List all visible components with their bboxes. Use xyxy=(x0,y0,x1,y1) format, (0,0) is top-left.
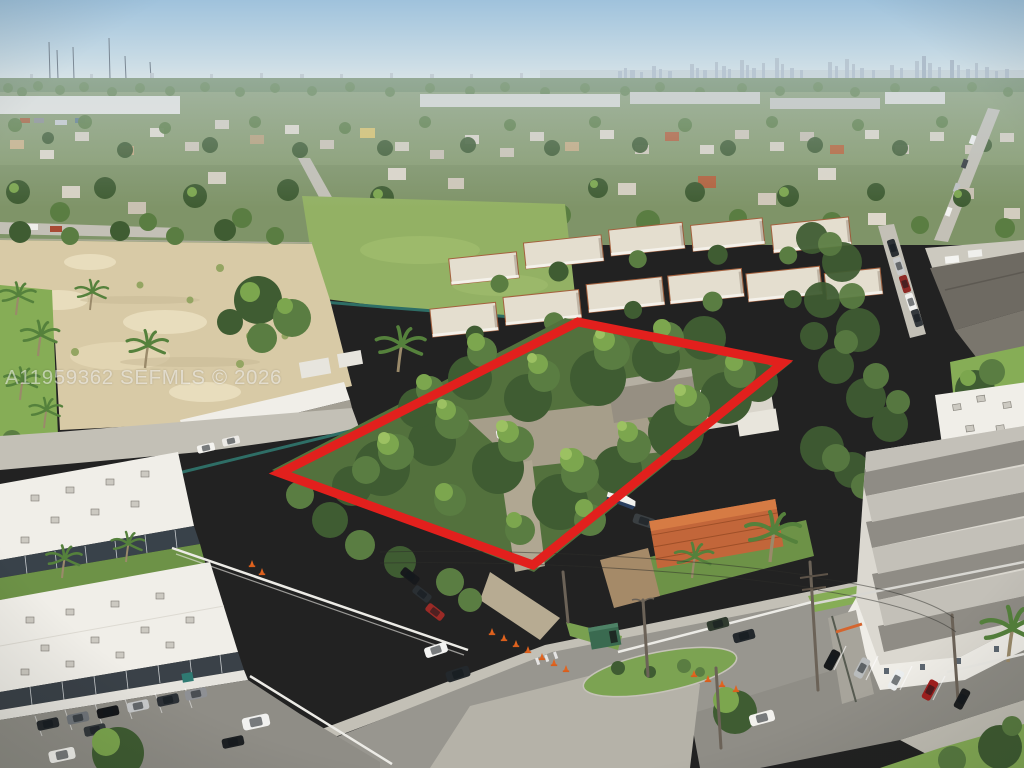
vignette xyxy=(0,0,1024,768)
aerial-photo: A11959362 SEFMLS © 2026 xyxy=(0,0,1024,768)
aerial-photo-canvas xyxy=(0,0,1024,768)
